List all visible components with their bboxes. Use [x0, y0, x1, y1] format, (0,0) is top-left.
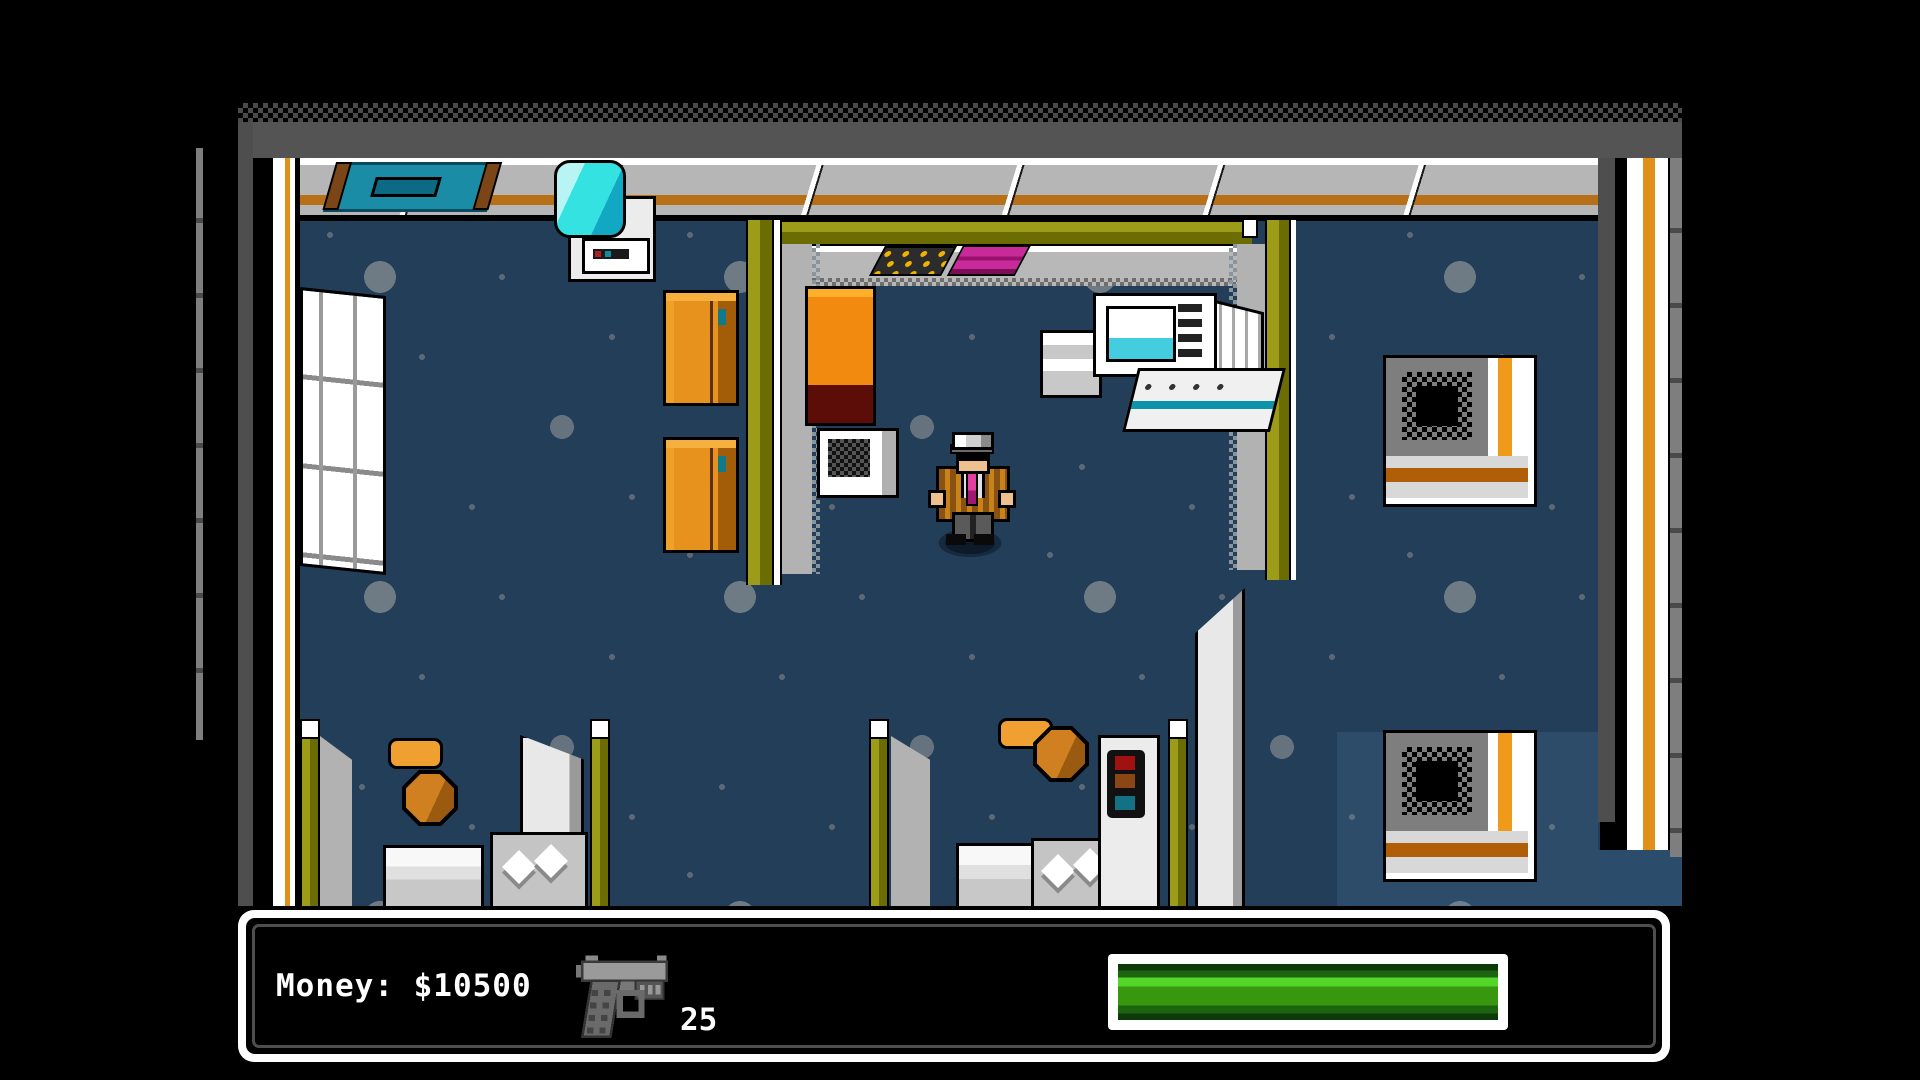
hud-inner: Money: $10500 25: [246, 918, 1662, 1054]
ac-top-face: [1386, 733, 1488, 831]
painting-inner: [370, 177, 442, 197]
player-hat: [952, 432, 994, 450]
cabinet-label: [718, 456, 726, 472]
office-desk-2: [490, 832, 588, 906]
wall-corner: [590, 719, 610, 739]
cubicle-a-wall-left: [300, 719, 320, 906]
dispenser-button-red: [595, 251, 601, 257]
printer-top-grille: [828, 439, 870, 477]
computer-keyboard: [1122, 368, 1286, 432]
ac-side-face: [1488, 358, 1528, 456]
office-desk-3: [956, 843, 1041, 906]
player-shoe-right: [974, 534, 994, 545]
cubicle-a-partition-left: [320, 736, 352, 906]
chair-seat-top: [406, 774, 454, 822]
health-bar-fill: [1118, 964, 1498, 1020]
room-left-wall: [746, 220, 782, 585]
ammo-count: 25: [680, 1002, 717, 1038]
cubicle-b-wall-right: [1168, 719, 1188, 906]
right-wall-pillar: [1670, 158, 1682, 857]
room-top-wall: [750, 220, 1252, 246]
wall-corner: [1168, 719, 1188, 739]
right-wall-gap-pillar: [1598, 158, 1615, 822]
health-bar: [1108, 954, 1508, 1030]
player-character: [928, 432, 1012, 562]
ac-unit-1: [1383, 355, 1537, 507]
ac-front-face: [1386, 456, 1528, 498]
wall-corner: [300, 719, 320, 739]
orange-side-table: [805, 286, 876, 426]
water-cooler-dispenser: [582, 238, 650, 274]
copier-panel: [1107, 750, 1145, 818]
player-hand-right: [998, 490, 1016, 508]
outer-wall-top: [238, 122, 1682, 158]
cubicle-a-wall-right: [590, 719, 610, 906]
ac-unit-2: [1383, 730, 1537, 882]
cabinet-label: [718, 309, 726, 325]
money-label: Money: $10500: [276, 968, 532, 1004]
cubicle-b-wall-left: [869, 719, 889, 906]
player-hand-left: [928, 490, 946, 508]
hud-panel: Money: $10500 25: [238, 910, 1670, 1062]
counter-edge-dither: [760, 278, 1244, 286]
copier-button-brown: [1115, 774, 1135, 788]
ac-vent-core: [1416, 386, 1458, 426]
room-corner-right: [1242, 218, 1258, 238]
cubicle-b-partition-left: [891, 736, 930, 906]
office-chair-1-back: [388, 738, 443, 769]
printer-side: [882, 431, 896, 495]
paper-diamond: [1041, 854, 1075, 888]
monitor-vents: [1178, 304, 1202, 360]
copier-button-teal: [1115, 796, 1135, 810]
cubicle-b-tall-panel: [1195, 588, 1245, 906]
monitor-screen: [1106, 306, 1176, 362]
game-viewport[interactable]: [238, 100, 1682, 906]
outer-left-pillar: [196, 148, 203, 740]
office-chair-1-seat: [402, 770, 458, 826]
wall-corner: [869, 719, 889, 739]
copier-machine: [1098, 735, 1160, 906]
chair-seat-top: [1037, 730, 1085, 778]
pistol-icon: [573, 940, 679, 1046]
game-screen: Money: $10500 25: [0, 0, 1920, 1080]
office-desk-1: [383, 845, 484, 906]
computer-monitor: [1093, 293, 1217, 377]
filing-cabinet-1: [663, 290, 739, 406]
right-wall-gap: [1615, 158, 1627, 846]
left-wall: [273, 158, 300, 906]
player-shoe-left: [946, 534, 966, 545]
paper-diamond: [534, 844, 568, 878]
ac-top-face: [1386, 358, 1488, 456]
ac-vent-core: [1416, 761, 1458, 801]
right-wall: [1627, 158, 1670, 850]
ac-front-face: [1386, 831, 1528, 873]
left-wall-pillar: [238, 122, 253, 906]
water-cooler-bottle: [554, 160, 626, 238]
filing-cabinet-2: [663, 437, 739, 553]
wall-shelf: [300, 287, 386, 575]
carpet-light-patch-2: [1598, 850, 1682, 906]
dispenser-button-teal: [605, 251, 611, 257]
copier-button-red: [1115, 756, 1135, 770]
ac-side-face: [1488, 733, 1528, 831]
paper-diamond: [502, 850, 536, 884]
top-dither-band: [238, 103, 1682, 123]
office-chair-2-seat: [1033, 726, 1089, 782]
printer-box: [817, 428, 899, 498]
wall-painting: [323, 162, 501, 212]
left-wall-gap: [253, 158, 273, 906]
